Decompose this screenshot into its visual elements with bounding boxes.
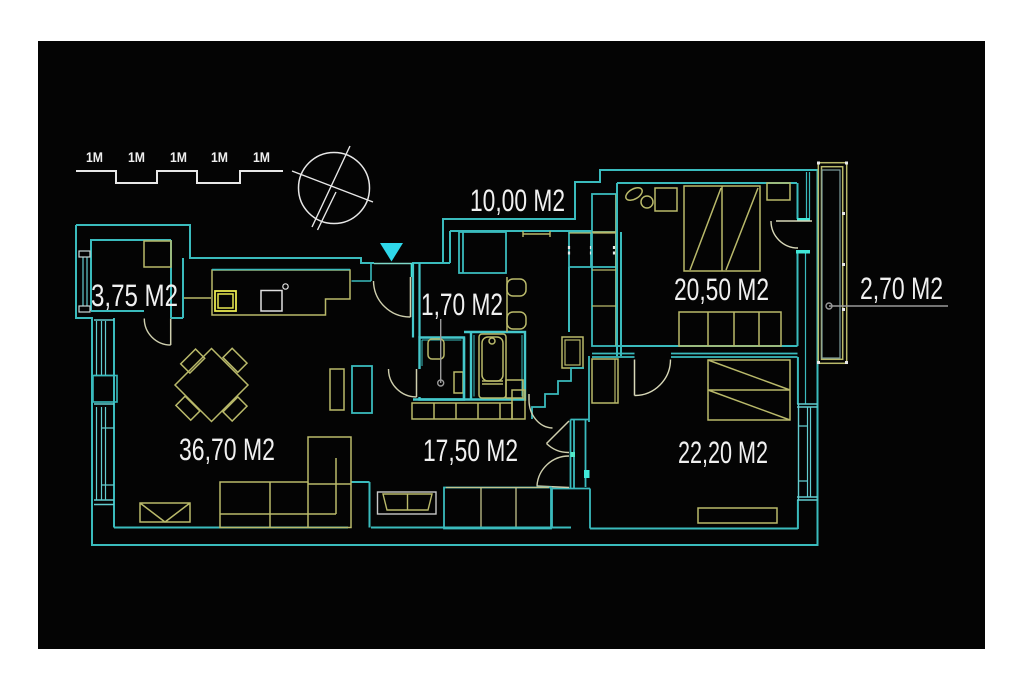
svg-text:20,50 M2: 20,50 M2	[674, 272, 769, 307]
svg-text:1,70 M2: 1,70 M2	[421, 287, 503, 322]
svg-text:10,00 M2: 10,00 M2	[470, 183, 565, 218]
svg-text:36,70 M2: 36,70 M2	[179, 432, 275, 467]
svg-text:1M: 1M	[86, 149, 103, 165]
svg-text:1M: 1M	[253, 149, 270, 165]
svg-text:2,70 M2: 2,70 M2	[860, 271, 943, 306]
svg-text:3,75 M2: 3,75 M2	[91, 278, 178, 313]
svg-text:1M: 1M	[170, 149, 187, 165]
svg-text:1M: 1M	[211, 149, 228, 165]
svg-text:17,50 M2: 17,50 M2	[423, 433, 518, 468]
svg-text:22,20 M2: 22,20 M2	[678, 435, 768, 470]
svg-text:1M: 1M	[128, 149, 145, 165]
